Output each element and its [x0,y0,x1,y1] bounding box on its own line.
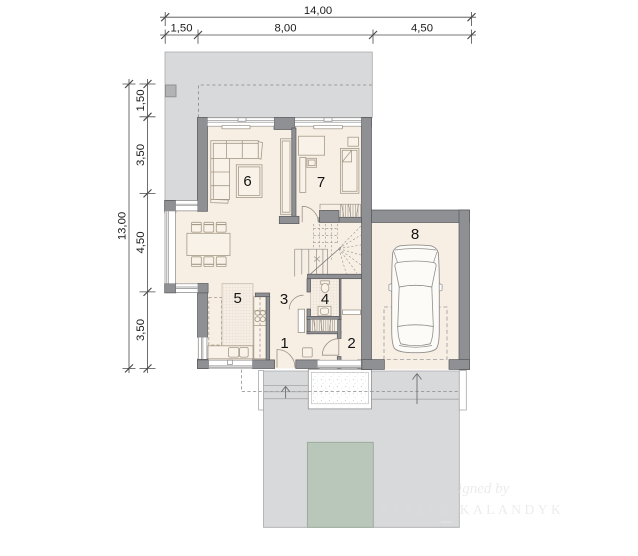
svg-text:13,00: 13,00 [117,212,129,240]
svg-text:3,50: 3,50 [135,319,147,341]
svg-text:LESZEK KALANDYK: LESZEK KALANDYK [382,502,565,517]
svg-text:7: 7 [317,174,325,191]
svg-text:4,50: 4,50 [411,23,433,35]
svg-text:Designed by: Designed by [434,481,510,497]
svg-text:1: 1 [280,335,288,352]
svg-text:3,50: 3,50 [135,144,147,166]
svg-text:3: 3 [280,291,288,308]
svg-text:2: 2 [347,335,355,352]
svg-text:4: 4 [321,291,329,308]
svg-text:1,50: 1,50 [135,90,147,112]
svg-text:1,50: 1,50 [171,23,193,35]
svg-text:14,00: 14,00 [304,5,332,17]
svg-text:5: 5 [234,290,242,307]
svg-text:8: 8 [411,226,419,243]
svg-text:4,50: 4,50 [135,232,147,254]
svg-text:8,00: 8,00 [275,23,297,35]
svg-text:6: 6 [243,173,251,190]
